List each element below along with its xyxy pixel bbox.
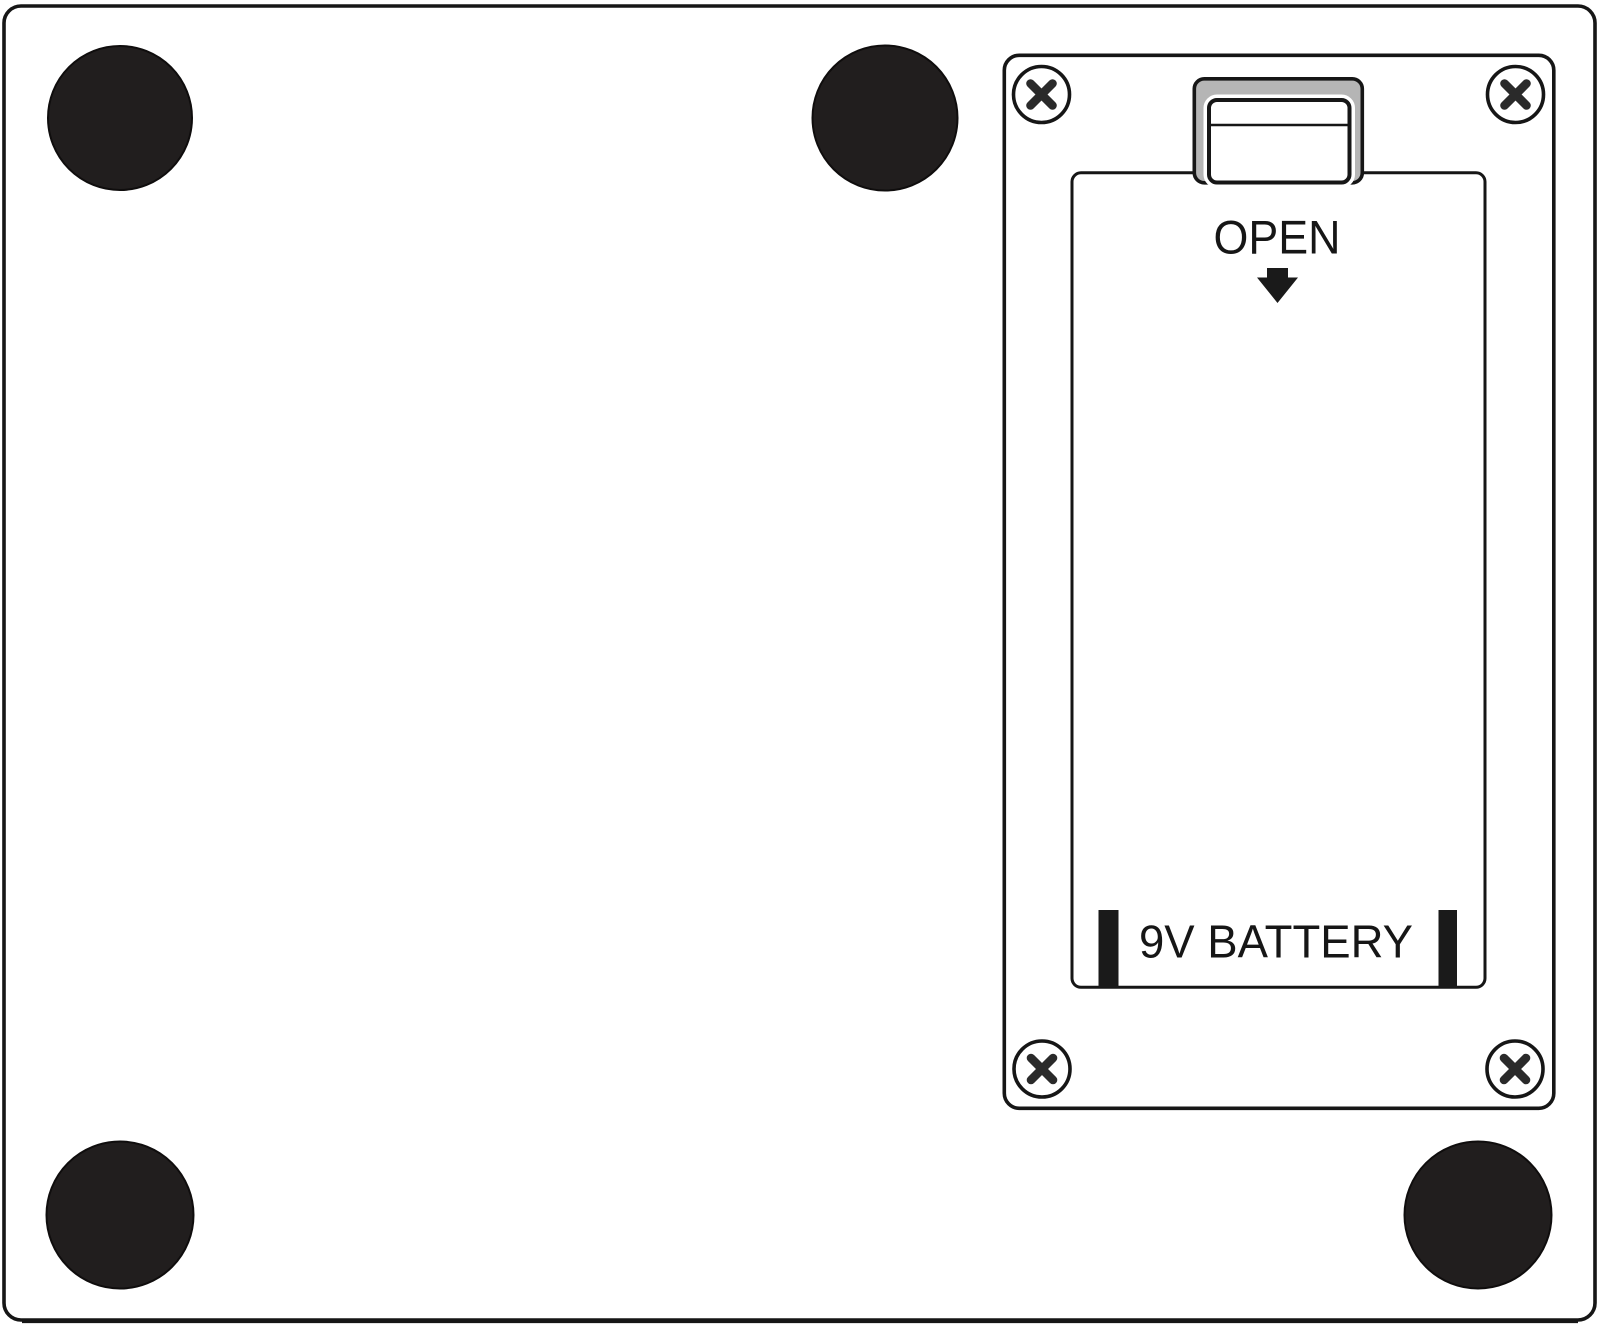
svg-text:9V BATTERY: 9V BATTERY [1139,916,1413,968]
svg-text:OPEN: OPEN [1214,212,1341,265]
